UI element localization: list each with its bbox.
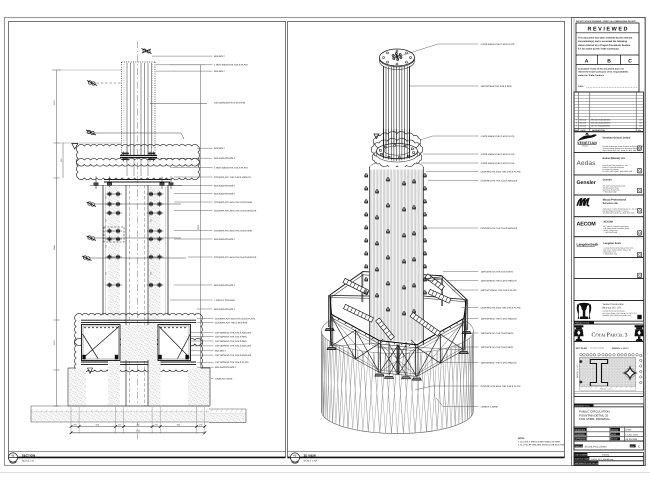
svg-text:4 NOS 450mmTHK G.M.S PLATE: 4 NOS 450mmTHK G.M.S PLATE — [481, 135, 515, 138]
svg-text:Date :: Date : — [578, 85, 585, 88]
svg-text:SECTION: SECTION — [22, 453, 35, 457]
svg-text:Langdon Seah: Langdon Seah — [603, 242, 621, 245]
svg-text:150*150*6mmTHK G.M.S SHS: 150*150*6mmTHK G.M.S SHS — [481, 85, 513, 88]
svg-text:M16 ANCHOR BOLT: M16 ANCHOR BOLT — [214, 193, 236, 196]
svg-text:CAD FILE NAME: CAD FILE NAME — [575, 458, 590, 461]
svg-text:Aedas (Macau) Ltd.: Aedas (Macau) Ltd. — [602, 157, 625, 160]
svg-text:relieve the Trade Contractor o: relieve the Trade Contractor of its resp… — [578, 71, 629, 74]
svg-text:1: 1 — [576, 125, 577, 128]
svg-text:LUNG: LUNG — [625, 429, 631, 432]
svg-text:COVERPLATE THK G.M.S ANGLES: COVERPLATE THK G.M.S ANGLES — [214, 176, 251, 179]
svg-text:REFERENCE CAD FILE NAME: REFERENCE CAD FILE NAME — [575, 462, 602, 465]
svg-text:450*150*150mm THK G.M.S PLATE: 450*150*150mm THK G.M.S PLATE — [481, 289, 518, 292]
svg-text:F (853) 2833 1532: F (853) 2833 1532 — [603, 253, 617, 256]
svg-text:JOB NUMBER: JOB NUMBER — [575, 453, 588, 456]
svg-text:M16 ANCHOR BOLT: M16 ANCHOR BOLT — [214, 308, 236, 311]
svg-text:M16 ANCHOR BOLT: M16 ANCHOR BOLT — [215, 366, 237, 369]
svg-text:DO NOT SCALE DRAWING. VERIFY A: DO NOT SCALE DRAWING. VERIFY ALL DIMENSI… — [576, 20, 637, 23]
svg-text:S15/26_PC2_05/040: S15/26_PC2_05/040 — [585, 445, 608, 448]
svg-text:LangdonSeah: LangdonSeah — [577, 243, 599, 247]
svg-text:B: B — [607, 59, 611, 65]
svg-text:Gensler: Gensler — [577, 180, 596, 186]
svg-text:2: 2 — [576, 121, 577, 124]
svg-text:DWG NO: DWG NO — [575, 445, 584, 448]
svg-text:(Macau) CO. LTD.: (Macau) CO. LTD. — [602, 306, 622, 309]
svg-text:PARCEL 1, LOT 2: PARCEL 1, LOT 2 — [612, 347, 629, 350]
svg-text:150*150*6mm THK G.M.S ANGLES: 150*150*6mm THK G.M.S ANGLES — [481, 361, 517, 364]
svg-text:CHECKED: CHECKED — [575, 433, 585, 436]
svg-text:150*150*6mm THK G.M.S PLATE: 150*150*6mm THK G.M.S PLATE — [215, 361, 249, 364]
svg-text:DATE: DATE — [611, 433, 617, 436]
svg-text:AS SHOWN: AS SHOWN — [625, 438, 637, 441]
svg-text:150*150*6mm THK G.M.S ANGLES: 150*150*6mm THK G.M.S ANGLES — [481, 279, 517, 282]
svg-text:4 NOS 450mmTHK G.M.S PLATE: 4 NOS 450mmTHK G.M.S PLATE — [481, 153, 515, 156]
svg-text:DATE: DATE — [581, 129, 587, 132]
svg-text:COVERPLATE 6mm THK G.M.S SHS: COVERPLATE 6mm THK G.M.S SHS — [214, 229, 252, 232]
svg-text:150*150*6mm THK G.M.S ANGLES: 150*150*6mm THK G.M.S ANGLES — [215, 354, 251, 357]
svg-text:Tel: (853) 2870 3218 Fax: (8: Tel: (853) 2870 3218 Fax: (853) 2870 331… — [603, 212, 635, 215]
svg-text:COVERPLATE 6mm THK G.M.S PLATE: COVERPLATE 6mm THK G.M.S PLATE — [215, 317, 256, 320]
svg-text:1. ALL BOLT SHOULD BE FIXING O: 1. ALL BOLT SHOULD BE FIXING ON SITE. — [518, 440, 561, 443]
svg-text:Services Ltd.: Services Ltd. — [603, 202, 619, 205]
svg-text:Tel: (853) 2833 1028 F (853): Tel: (853) 2833 1028 F (853) 2833 1028 — [602, 170, 632, 173]
svg-text:DESCRIPTION: DESCRIPTION — [592, 129, 606, 132]
svg-text:FOR STEEL DRAWING: FOR STEEL DRAWING — [579, 417, 610, 421]
svg-text:250: 250 — [105, 196, 108, 199]
svg-text:T +852.2866.6308: T +852.2866.6308 — [603, 191, 617, 194]
svg-text:150*150*6mm THK G.M.S ANGLES: 150*150*6mm THK G.M.S ANGLES — [215, 345, 251, 348]
svg-text:500: 500 — [150, 272, 153, 275]
svg-text:COVERPLATE 6mm THK G.M.S ANGLE: COVERPLATE 6mm THK G.M.S ANGLES — [214, 209, 257, 212]
svg-text:4 NOS 450mmTHK G.M.S PLATE: 4 NOS 450mmTHK G.M.S PLATE — [481, 162, 515, 165]
svg-text:3D VIEW: 3D VIEW — [304, 453, 317, 457]
svg-text:M16 ANCHOR BOLT: M16 ANCHOR BOLT — [214, 238, 236, 241]
svg-text:500: 500 — [105, 272, 108, 275]
svg-text:=2500 R.C BASE: =2500 R.C BASE — [215, 378, 233, 381]
svg-text:under the Trade Contract.: under the Trade Contract. — [578, 74, 604, 77]
svg-text:Aedas: Aedas — [577, 160, 596, 167]
svg-text:4 NOS 450mmTHK G.M.S PLATE: 4 NOS 450mmTHK G.M.S PLATE — [214, 64, 248, 67]
svg-text:18-3-15: 18-3-15 — [580, 125, 587, 128]
svg-text:AECOM: AECOM — [577, 222, 597, 228]
svg-text:150*150*6 mm THK G.M.S SHS: 150*150*6 mm THK G.M.S SHS — [481, 270, 514, 273]
svg-text:COVERPLATE 6mm THK G.M.S PLATE: COVERPLATE 6mm THK G.M.S PLATE — [481, 170, 522, 173]
svg-text:R E V I E W E D: R E V I E W E D — [587, 26, 627, 32]
svg-text:DRAWN: DRAWN — [611, 428, 619, 431]
svg-text:COVERPLATE 6mm THK G.M.S SHS: COVERPLATE 6mm THK G.M.S SHS — [214, 201, 252, 204]
svg-text:2. ALL FILLET WELDED SHOULD BE: 2. ALL FILLET WELDED SHOULD BE 6mm THK. — [518, 444, 565, 447]
svg-text:KEY PLAN: KEY PLAN — [576, 347, 587, 350]
svg-text:COVERPLATE THK G.M.S SHS: COVERPLATE THK G.M.S SHS — [215, 321, 248, 324]
svg-text:COVERPLATE 6mm THK G.M.S PLATE: COVERPLATE 6mm THK G.M.S PLATE — [481, 385, 522, 388]
svg-text:150*150*6mm THK G.M.S SHS: 150*150*6mm THK G.M.S SHS — [215, 336, 247, 339]
svg-text:3: 3 — [576, 118, 577, 121]
svg-text:150*150*6mm THK G.M.S ANGLES: 150*150*6mm THK G.M.S ANGLES — [481, 317, 517, 320]
svg-text:COVERPLATE THK G.M.S ANGLES: COVERPLATE THK G.M.S ANGLES — [481, 227, 518, 230]
svg-text:M16 BOLT: M16 BOLT — [215, 350, 226, 353]
svg-text:S15/26_PC2_05/040.dwg: S15/26_PC2_05/040.dwg — [591, 458, 614, 461]
svg-text:Venetian Orient Limited: Venetian Orient Limited — [602, 136, 630, 139]
svg-text:22-5-15: 22-5-15 — [580, 118, 587, 121]
svg-text:150*150*6mmTHK G.M.S SHS: 150*150*6mmTHK G.M.S SHS — [214, 101, 246, 104]
svg-text:T +852 3922 9000: T +852 3922 9000 — [603, 231, 617, 234]
svg-text:500: 500 — [105, 219, 108, 222]
svg-text:COVERPLATE 6mm THK G.M.S ANGLE: COVERPLATE 6mm THK G.M.S ANGLES — [214, 256, 257, 259]
svg-text:Taipa, Macau SAR, P.R. China: Taipa, Macau SAR, P.R. China Tel:(853) 2… — [602, 149, 640, 152]
svg-text:08-4-15: 08-4-15 — [580, 121, 587, 124]
svg-text:150*150*6mm THK G.M.S ANGLES: 150*150*6mm THK G.M.S ANGLES — [215, 332, 251, 335]
svg-text:3RD DD SUBMISSION: 3RD DD SUBMISSION — [591, 118, 611, 121]
svg-text:1ST DD SUBMISSION: 1ST DD SUBMISSION — [591, 125, 611, 128]
svg-text:14-JUL-2015: 14-JUL-2015 — [625, 433, 638, 436]
svg-text:COVERPLATE THK G.M.S ANGLES: COVERPLATE THK G.M.S ANGLES — [481, 179, 518, 182]
svg-text:C: C — [628, 59, 632, 65]
svg-text:status referred to in Project: status referred to in Project Procedures… — [578, 44, 631, 47]
svg-text:SCALE: SCALE — [611, 438, 618, 441]
svg-text:4 NOS 450mmTHK G.M.S PLATE: 4 NOS 450mmTHK G.M.S PLATE — [214, 166, 248, 169]
svg-text:= 500 R.C COLUMN: = 500 R.C COLUMN — [214, 299, 235, 302]
svg-text:APPROVED: APPROVED — [575, 438, 586, 441]
svg-text:5.4 for action by the Trade Co: 5.4 for action by the Trade Contractor. — [578, 47, 620, 50]
svg-text:500: 500 — [150, 219, 153, 222]
svg-text:M16 BOLT: M16 BOLT — [214, 147, 225, 150]
svg-text:SCALE 1:8: SCALE 1:8 — [22, 460, 34, 463]
svg-text:This document has been reviewe: This document has been reviewed by the r… — [578, 37, 632, 40]
svg-text:M16 BOLT: M16 BOLT — [214, 55, 225, 58]
svg-text:Consultants(s) and is accorded: Consultants(s) and is accorded the follo… — [578, 40, 628, 43]
svg-text:PARCEL 1, LOT 3: PARCEL 1, LOT 3 — [576, 364, 579, 378]
svg-text:Alameda: 2871 0330 www.yaulee: Alameda: 2871 0330 www.yaulee.com — [602, 314, 631, 317]
svg-text:AECOM: AECOM — [603, 220, 612, 223]
svg-text:150*150*6 mm THK G.M.S SHS: 150*150*6 mm THK G.M.S SHS — [481, 332, 514, 335]
svg-text:M16 ANCHOR BOLT: M16 ANCHOR BOLT — [214, 284, 236, 287]
svg-text:M16 BOLT: M16 BOLT — [214, 70, 225, 73]
svg-text:SCALE 1:NF: SCALE 1:NF — [304, 460, 318, 463]
svg-text:2ND DD SUBMISSION: 2ND DD SUBMISSION — [591, 121, 611, 124]
svg-text:NOTE:: NOTE: — [518, 437, 525, 440]
svg-text:M16 ANCHOR BOLT: M16 ANCHOR BOLT — [214, 185, 236, 188]
svg-text:150*150*6 mm THK G.M.S SHS: 150*150*6 mm THK G.M.S SHS — [481, 346, 514, 349]
svg-text:4 NOS 450mmTHK G.M.S PLATE: 4 NOS 450mmTHK G.M.S PLATE — [481, 43, 515, 46]
svg-text:DESIGNED: DESIGNED — [575, 428, 586, 431]
svg-text:A: A — [585, 59, 589, 65]
svg-text:=2500 R.C BASE: =2500 R.C BASE — [481, 405, 499, 408]
svg-text:COVERPLATE 6mm THK G.M.S PLATE: COVERPLATE 6mm THK G.M.S PLATE — [481, 306, 522, 309]
svg-text:7500: 7500 — [197, 224, 200, 230]
svg-text:Consultant review of this docu: Consultant review of this document does … — [578, 67, 624, 70]
svg-text:500: 500 — [105, 245, 108, 248]
svg-text:M16 ANCHOR BOLT: M16 ANCHOR BOLT — [214, 157, 236, 160]
svg-text:C: C — [638, 445, 640, 449]
svg-text:150*150*6mm THK G.M.S SHS: 150*150*6mm THK G.M.S SHS — [215, 340, 247, 343]
svg-text:Gensler: Gensler — [603, 178, 612, 181]
